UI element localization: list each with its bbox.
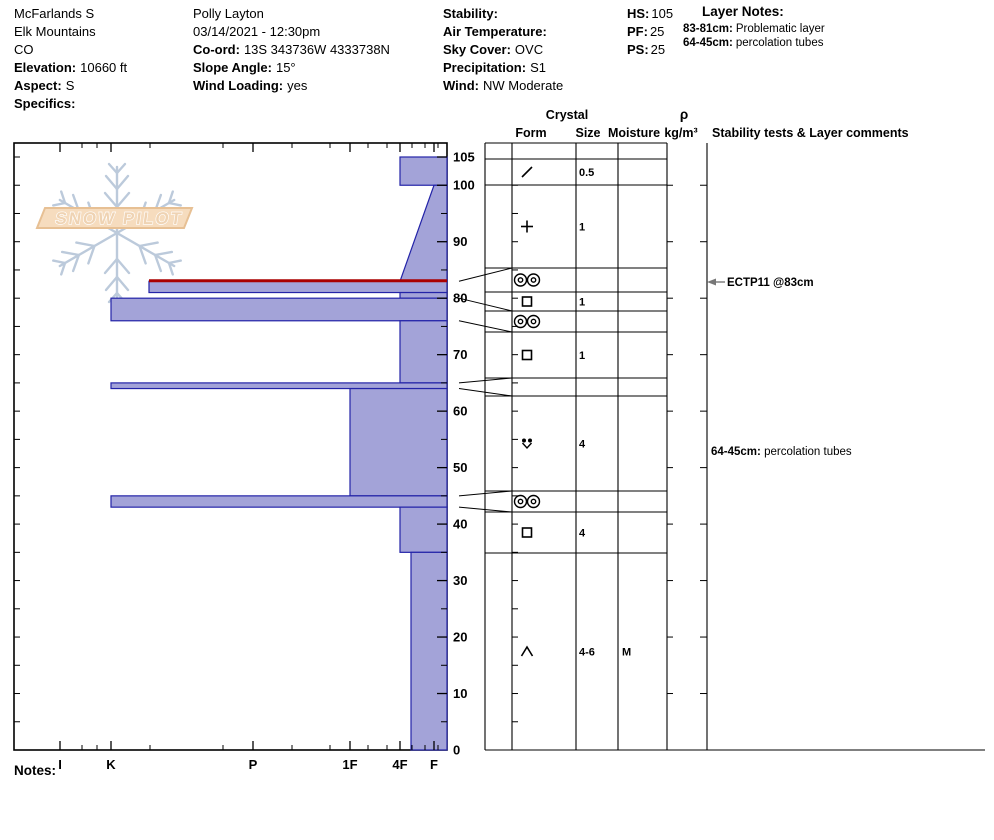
crystal-form-symbol-DH — [522, 647, 533, 656]
crystal-form-glyph — [523, 297, 532, 306]
snowflake-line — [106, 176, 117, 189]
crystal-form-glyph — [528, 496, 540, 508]
crystal-form-glyph — [522, 167, 532, 177]
snowflake-line — [117, 193, 129, 207]
depth-axis-label: 70 — [453, 347, 467, 362]
layer-bar-105-100cm — [400, 157, 447, 185]
depth-axis-label: 10 — [453, 686, 467, 701]
column-header-size: Size — [575, 126, 600, 140]
depth-axis-label: 0 — [453, 743, 460, 758]
depth-axis-label: 100 — [453, 178, 475, 193]
crystal-form-glyph — [531, 499, 535, 503]
snow-profile-chart: 1051009080706050403020100IKP1F4FF0.51114… — [14, 107, 985, 772]
hardness-axis-label: I — [58, 757, 62, 772]
crystal-form-glyph — [523, 528, 532, 537]
crystal-form-glyph — [523, 443, 532, 448]
depth-axis-label: 60 — [453, 404, 467, 419]
snow-profile-figure: SNOW PILOT 1051009080706050403020100IKP1… — [0, 0, 994, 840]
crystal-form-glyph — [515, 274, 527, 286]
moisture-value: M — [622, 647, 631, 659]
depth-axis-label: 40 — [453, 517, 467, 532]
hardness-axis-label: 1F — [342, 757, 357, 772]
crystal-form-glyph — [522, 647, 533, 656]
snowflake-line — [117, 176, 128, 189]
layer-bar-65-64cm — [111, 383, 447, 389]
crystal-form-glyph — [528, 439, 532, 443]
depth-axis-label: 20 — [453, 630, 467, 645]
depth-axis-label: 50 — [453, 460, 467, 475]
crystal-form-symbol-FCxr — [522, 439, 532, 449]
snowflake-branch — [105, 233, 129, 302]
hardness-axis-label: 4F — [392, 757, 407, 772]
test-arrow-icon — [707, 279, 716, 286]
column-header-density-units: kg/m³ — [664, 126, 697, 140]
column-header-moisture: Moisture — [608, 126, 660, 140]
stability-test-label: ECTP11 @83cm — [727, 277, 814, 289]
layer-bar-45-43cm — [111, 496, 447, 507]
crystal-form-glyph — [528, 316, 540, 328]
crystal-form-glyph — [523, 351, 532, 360]
snowflake-line — [105, 259, 117, 273]
hardness-axis-label: F — [430, 757, 438, 772]
crystal-form-glyph — [522, 439, 526, 443]
crystal-form-symbol-FC — [523, 528, 532, 537]
layer-bar-81-80cm — [400, 293, 447, 299]
crystal-size-value: 1 — [579, 222, 585, 234]
snowflake-line — [117, 277, 128, 290]
crystal-size-value: 1 — [579, 350, 585, 362]
crystal-form-symbol-MFcr — [515, 316, 540, 328]
depth-axis-label: 105 — [453, 150, 475, 165]
crystal-size-value: 0.5 — [579, 167, 594, 179]
layer-bar-100-83cm — [400, 185, 447, 281]
hardness-axis-label: K — [106, 757, 116, 772]
column-header-crystal: Crystal — [546, 108, 588, 122]
notes-footer-label: Notes: — [14, 763, 56, 778]
layer-bar-76-65cm — [400, 321, 447, 383]
hardness-axis-label: P — [249, 757, 258, 772]
crystal-form-symbol-MFcr — [515, 274, 540, 286]
depth-axis-label: 30 — [453, 573, 467, 588]
column-header-form: Form — [515, 126, 546, 140]
crystal-form-symbol-PP — [521, 221, 533, 233]
crystal-form-glyph — [531, 319, 535, 323]
layer-bar-35-0cm — [411, 552, 447, 750]
crystal-form-symbol-FC — [523, 351, 532, 360]
crystal-form-symbol-FC — [523, 297, 532, 306]
column-header-comments: Stability tests & Layer comments — [712, 126, 909, 140]
crystal-form-symbol-DF — [522, 167, 532, 177]
layer-bar-83-81cm — [149, 281, 447, 292]
crystal-size-value: 1 — [579, 297, 585, 309]
layer-comment: 64-45cm: percolation tubes — [711, 446, 852, 458]
crystal-form-glyph — [531, 278, 535, 282]
layer-bar-43-35cm — [400, 507, 447, 552]
layer-comment-text: percolation tubes — [761, 446, 852, 458]
snowflake-line — [105, 193, 117, 207]
snowflake-line — [106, 277, 117, 290]
crystal-size-value: 4 — [579, 439, 586, 451]
layer-comment-range: 64-45cm: — [711, 446, 761, 458]
crystal-size-value: 4 — [579, 528, 586, 540]
crystal-form-glyph — [528, 274, 540, 286]
depth-axis-label: 90 — [453, 234, 467, 249]
crystal-form-glyph — [518, 319, 522, 323]
column-header-density-rho: ρ — [680, 107, 688, 122]
crystal-form-glyph — [518, 499, 522, 503]
logo-text: SNOW PILOT — [54, 209, 184, 228]
crystal-form-symbol-MFcr — [515, 496, 540, 508]
layer-bar-64-45cm — [350, 389, 447, 496]
crystal-size-value: 4-6 — [579, 647, 595, 659]
crystal-form-glyph — [515, 316, 527, 328]
crystal-form-glyph — [515, 496, 527, 508]
crystal-form-glyph — [518, 278, 522, 282]
snowflake-line — [117, 259, 129, 273]
layer-bar-80-76cm — [111, 298, 447, 321]
